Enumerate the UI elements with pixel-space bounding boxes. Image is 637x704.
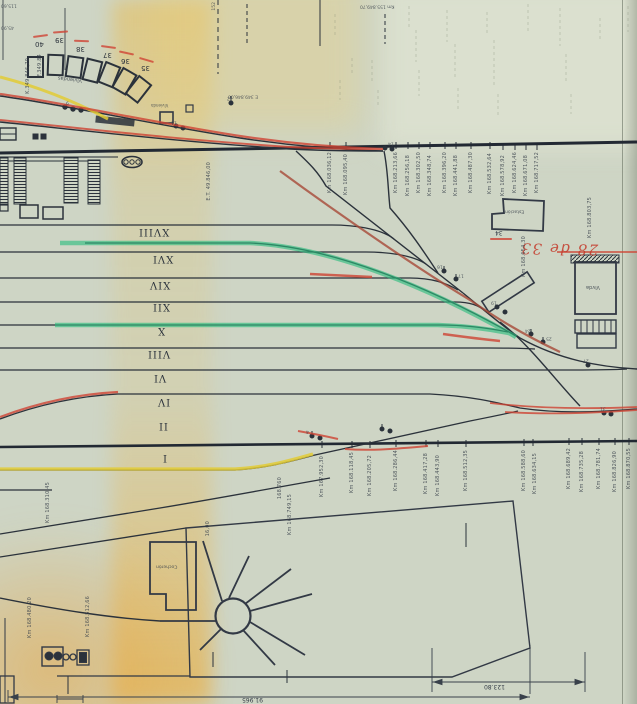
km-label: Km 168.480,20	[28, 597, 33, 638]
switch-number: 9	[66, 99, 69, 104]
track-label-xii: XII	[152, 301, 170, 311]
dwelling-block-label: Vivda	[586, 284, 600, 289]
track-label-i: I	[162, 452, 167, 462]
highlight-green	[55, 243, 516, 337]
km-label: Km 168.689,42	[567, 448, 572, 489]
km-label: Km 168.578,92	[501, 155, 506, 196]
station-number: 34	[495, 229, 503, 235]
km-label: Km 168.417,28	[424, 453, 429, 494]
km-label: Km 168.441,88	[454, 155, 459, 196]
switch-number: 14	[388, 140, 394, 145]
km-label: Km 168.717,52	[535, 152, 540, 193]
km-label: Km 168.286,44	[394, 450, 399, 491]
km-label: Km 168.036,12	[328, 152, 333, 193]
dimension-lines	[8, 645, 585, 703]
km-label: Km 168.512,66	[86, 596, 91, 637]
track-label-vi: VI	[153, 372, 166, 382]
km-label: Km 168.735,28	[580, 451, 585, 492]
ramp-number: 36	[121, 57, 130, 64]
km-label: Km 168.634,15	[533, 453, 538, 494]
km-label: Km 168.781,74	[597, 448, 602, 489]
ghost-bleed-marks	[335, 4, 628, 116]
track-label-xiv: XIV	[149, 279, 170, 289]
km-label: Km 168.348,74	[428, 155, 433, 196]
switch-number: 31	[600, 405, 606, 410]
km-label: Km 168.443,90	[436, 455, 441, 496]
km-label: Km 168.671,08	[524, 155, 529, 196]
dimension-partial: 123.80	[484, 683, 505, 689]
sheet-note-red: 28 de 33	[520, 240, 598, 256]
km-label: 115,60	[1, 2, 17, 7]
km-label: 16,00	[206, 521, 211, 536]
scanned-track-plan: XVIII XVI XIV XII X VIII VI IV II I 40 3…	[0, 0, 637, 704]
switch-number: 16	[437, 263, 443, 268]
km-label: Km 168.205,72	[368, 455, 373, 496]
km-label: Km 167.952,30	[320, 456, 325, 497]
dwelling-small-label: Vivienda	[151, 103, 168, 107]
km-label: Km 168.870,55	[627, 448, 632, 489]
turntable	[160, 541, 312, 665]
ramp-number: 35	[141, 64, 150, 71]
depot-enclosure	[186, 501, 530, 677]
plan-linework	[0, 0, 637, 704]
switch-number: 12	[227, 95, 233, 100]
track-label-ii: II	[158, 420, 168, 430]
km-label: Km 168.826,90	[613, 451, 618, 492]
km-label: K.349.846,70	[26, 58, 31, 94]
km-label: Km 168.624,46	[513, 152, 518, 193]
km-label: Km 168.095,40	[344, 154, 349, 195]
km-label: E.T. 49.846,00	[207, 162, 212, 201]
km-label: 45,90	[1, 24, 14, 29]
switch-number: 25	[546, 335, 552, 340]
ramp-number: 37	[103, 51, 112, 58]
track-label-viii: VIII	[147, 348, 170, 358]
track-label-xviii: XVIII	[138, 226, 169, 236]
km-label: Km 168.512,35	[464, 450, 469, 491]
km-label: Km 168.803,75	[588, 197, 593, 238]
ramp-number: 38	[76, 45, 85, 52]
reference-ticks	[3, 0, 629, 694]
km-label: Km 168.588,60	[522, 450, 527, 491]
switch-number: 4	[306, 428, 309, 433]
km-label: Km 168.302,50	[417, 152, 422, 193]
km-label: 152	[213, 2, 218, 11]
engine-shed-label: Cocherón	[156, 563, 177, 568]
km-label: 168.760	[278, 477, 283, 499]
red-mark-station-34	[490, 238, 512, 240]
km-label: F.349.84	[38, 54, 43, 77]
km-label: Km 168.749,15	[288, 494, 293, 535]
km-label: Km 168.256,18	[406, 155, 411, 196]
track-label-x: X	[157, 325, 165, 335]
km-label: Km 155.849,70	[360, 3, 395, 8]
km-label: Km 168.213,66	[394, 152, 399, 193]
dimension-total: 91.965	[242, 696, 263, 702]
switch-number: 19	[491, 299, 497, 304]
km-label: Km 168.487,30	[469, 152, 474, 193]
track-label-iv: IV	[157, 396, 170, 406]
km-label: Km 168.654,30	[522, 236, 527, 277]
switch-number: 27	[583, 357, 589, 362]
km-label: Km 168.532,64	[488, 153, 493, 194]
km-label: Km 168.396,20	[443, 152, 448, 193]
track-label-xvi: XVI	[152, 253, 173, 263]
ramp-cells	[28, 55, 151, 103]
station-label: Estación	[505, 208, 524, 213]
ramp-number: 39	[55, 36, 64, 43]
km-label: Km 168.310,45	[46, 482, 51, 523]
switch-number: 11	[171, 119, 177, 124]
km-label: Km 168.118,45	[350, 452, 355, 493]
ramp-number: 40	[35, 40, 44, 47]
switch-number: 17	[458, 272, 464, 277]
switch-number: 24	[525, 327, 531, 332]
